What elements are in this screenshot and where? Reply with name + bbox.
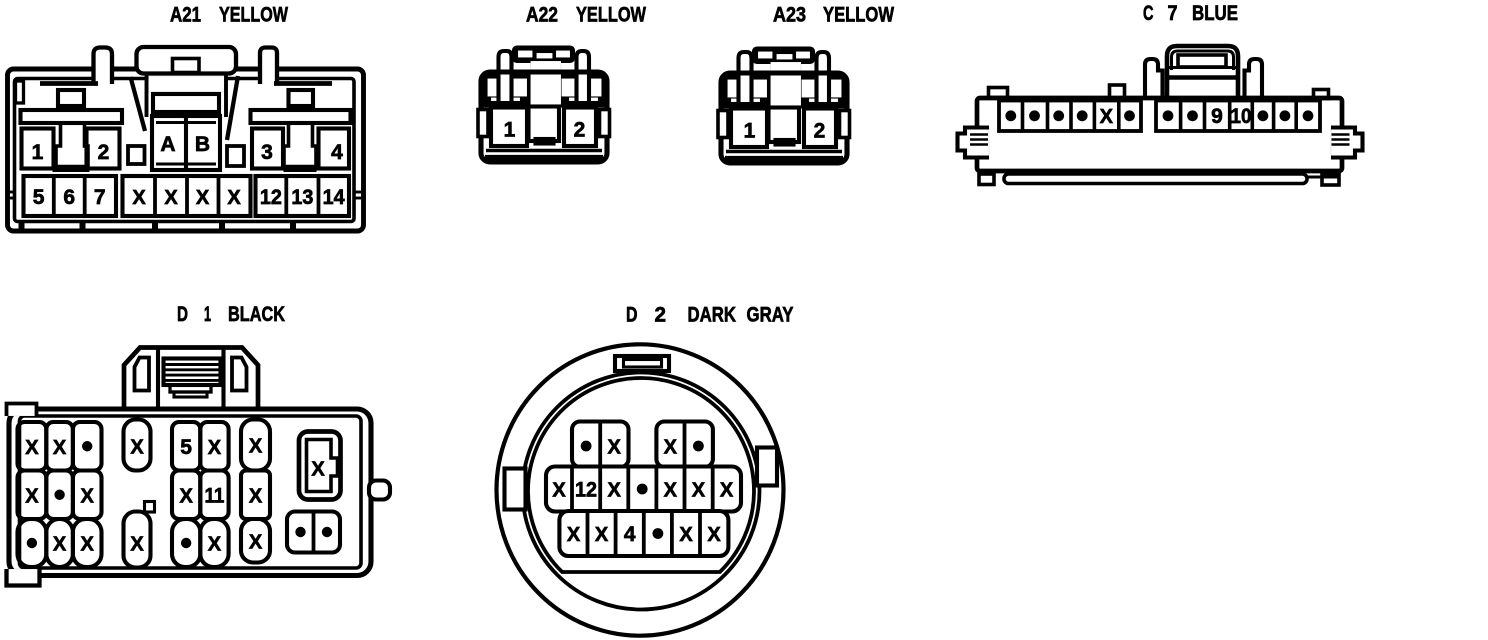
svg-text:X: X bbox=[679, 524, 693, 546]
svg-text:14: 14 bbox=[323, 186, 345, 209]
svg-text:X: X bbox=[664, 480, 678, 502]
svg-text:A22: A22 bbox=[526, 4, 558, 27]
svg-text:X: X bbox=[311, 459, 325, 481]
svg-text:5: 5 bbox=[180, 436, 192, 459]
svg-text:X: X bbox=[179, 485, 193, 507]
svg-text:3: 3 bbox=[261, 141, 273, 164]
svg-text:X: X bbox=[53, 534, 67, 556]
svg-text:2: 2 bbox=[655, 304, 667, 327]
svg-text:A21: A21 bbox=[170, 4, 201, 27]
svg-text:10: 10 bbox=[1231, 105, 1252, 128]
svg-text:X: X bbox=[25, 437, 39, 459]
svg-text:GRAY: GRAY bbox=[747, 304, 794, 327]
svg-text:1: 1 bbox=[504, 119, 516, 142]
svg-text:X: X bbox=[81, 534, 95, 556]
svg-text:X: X bbox=[249, 485, 263, 507]
svg-text:D: D bbox=[626, 304, 638, 327]
svg-text:4: 4 bbox=[331, 141, 343, 164]
svg-text:1: 1 bbox=[744, 120, 756, 143]
svg-text:B: B bbox=[195, 133, 210, 156]
svg-text:A: A bbox=[160, 133, 175, 156]
svg-text:YELLOW: YELLOW bbox=[576, 4, 646, 27]
svg-text:X: X bbox=[164, 187, 178, 209]
svg-text:X: X bbox=[130, 437, 144, 459]
svg-text:X: X bbox=[664, 437, 678, 459]
svg-text:X: X bbox=[692, 480, 706, 502]
svg-text:1: 1 bbox=[204, 303, 211, 326]
svg-text:X: X bbox=[132, 187, 146, 209]
svg-text:X: X bbox=[552, 480, 566, 502]
svg-text:X: X bbox=[208, 534, 222, 556]
svg-text:BLACK: BLACK bbox=[228, 303, 285, 326]
svg-text:X: X bbox=[595, 524, 609, 546]
svg-text:X: X bbox=[567, 524, 581, 546]
svg-text:X: X bbox=[196, 187, 210, 209]
svg-text:X: X bbox=[608, 480, 622, 502]
svg-text:1: 1 bbox=[32, 141, 44, 164]
svg-text:X: X bbox=[720, 480, 734, 502]
svg-text:12: 12 bbox=[575, 479, 597, 502]
svg-text:DARK: DARK bbox=[688, 304, 737, 327]
svg-text:YELLOW: YELLOW bbox=[823, 4, 894, 27]
svg-text:7: 7 bbox=[94, 186, 106, 209]
svg-text:A23: A23 bbox=[773, 4, 806, 27]
svg-text:X: X bbox=[1100, 106, 1114, 128]
svg-text:7: 7 bbox=[1168, 2, 1178, 25]
svg-text:X: X bbox=[249, 436, 263, 458]
svg-text:13: 13 bbox=[291, 186, 313, 209]
svg-text:X: X bbox=[53, 437, 67, 459]
svg-text:X: X bbox=[130, 534, 144, 556]
svg-text:X: X bbox=[227, 187, 241, 209]
svg-text:2: 2 bbox=[814, 120, 826, 143]
svg-text:2: 2 bbox=[98, 141, 110, 164]
svg-text:6: 6 bbox=[63, 186, 75, 209]
svg-text:X: X bbox=[81, 485, 95, 507]
svg-text:X: X bbox=[249, 531, 263, 553]
svg-text:X: X bbox=[25, 485, 39, 507]
svg-text:BLUE: BLUE bbox=[1192, 2, 1238, 25]
svg-text:2: 2 bbox=[574, 119, 586, 142]
svg-text:C: C bbox=[1143, 2, 1154, 25]
svg-text:4: 4 bbox=[624, 523, 636, 546]
svg-text:D: D bbox=[177, 303, 188, 326]
svg-text:11: 11 bbox=[204, 484, 224, 507]
svg-text:9: 9 bbox=[1211, 105, 1223, 128]
svg-text:YELLOW: YELLOW bbox=[219, 4, 288, 27]
svg-text:5: 5 bbox=[33, 186, 45, 209]
svg-text:X: X bbox=[208, 437, 222, 459]
svg-text:X: X bbox=[608, 437, 622, 459]
svg-text:X: X bbox=[707, 524, 721, 546]
svg-text:12: 12 bbox=[260, 186, 282, 209]
